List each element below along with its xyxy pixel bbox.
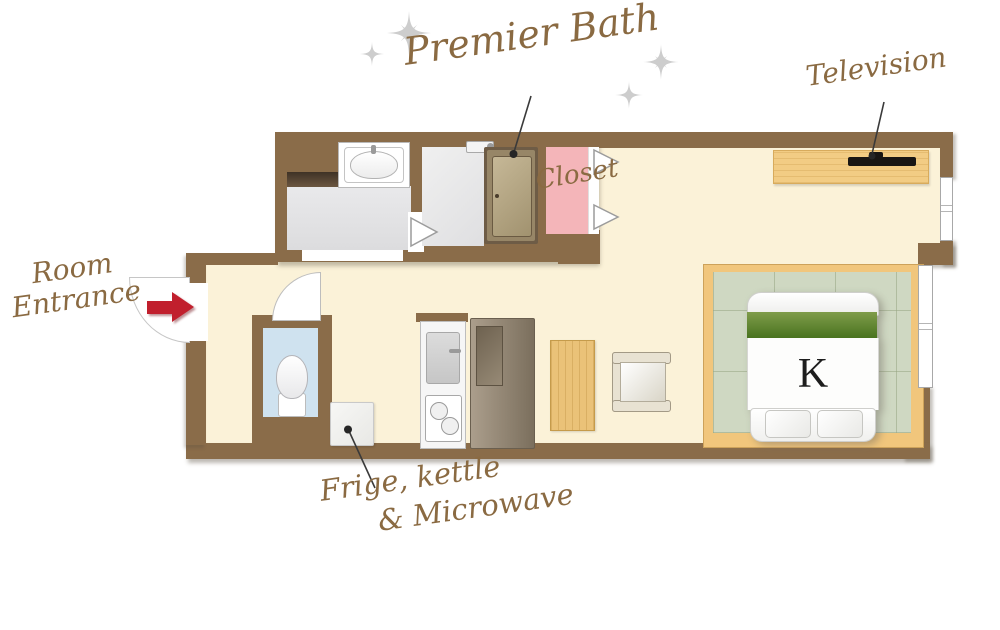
kitchen-faucet-icon: [449, 349, 461, 353]
kitchen-sink: [426, 332, 460, 384]
fridge-kettle-microwave-unit: [330, 402, 374, 446]
premier-bath-door: [484, 147, 538, 244]
television-set: [848, 157, 916, 166]
storage-cabinet: [470, 318, 535, 449]
storage-cabinet-inset: [476, 326, 503, 386]
washroom-doormat-strip: [302, 250, 403, 261]
washroom-floor: [287, 186, 411, 250]
tv-board: [773, 150, 929, 184]
armchair-seat: [620, 362, 666, 402]
entrance-arrow-icon: [146, 290, 196, 324]
king-bed: K: [747, 292, 877, 440]
stove-burner-2: [441, 417, 459, 435]
washroom-counter-dark: [287, 172, 338, 187]
premier-bath-door-handle: [495, 194, 499, 198]
floor-plan: K: [0, 0, 1000, 630]
bed-pillow-left: [765, 410, 811, 438]
washbasin-unit: [338, 142, 410, 188]
window-upper-right: [940, 177, 953, 241]
room-entrance-label: Room Entrance: [0, 243, 153, 325]
premier-bath-label: Premier Bath: [401, 0, 662, 74]
kitchenette-unit: [420, 321, 466, 449]
table: [550, 340, 595, 431]
washbasin-faucet-icon: [371, 145, 376, 154]
window-mullion: [941, 211, 952, 212]
window-mullion: [919, 323, 932, 324]
shower-room-floor: [422, 147, 484, 246]
bed-pillow-right: [817, 410, 863, 438]
right-wall-upper: [940, 132, 953, 178]
bed-green-runner: [747, 312, 877, 338]
corridor-top-wall: [186, 253, 278, 265]
armchair: [612, 352, 669, 410]
top-wall: [597, 132, 953, 148]
toilet-bowl: [276, 355, 308, 399]
window-beside-bed: [918, 265, 933, 388]
bed-body: K: [747, 338, 879, 410]
washbasin-bowl: [350, 151, 398, 179]
right-step-wall: [918, 243, 953, 265]
bed-size-label: K: [798, 351, 828, 397]
wall-below-closet: [558, 230, 600, 264]
television-label: Television: [804, 40, 949, 92]
window-mullion: [919, 329, 932, 330]
window-mullion: [941, 205, 952, 206]
entrance-arrow-head: [172, 292, 194, 322]
